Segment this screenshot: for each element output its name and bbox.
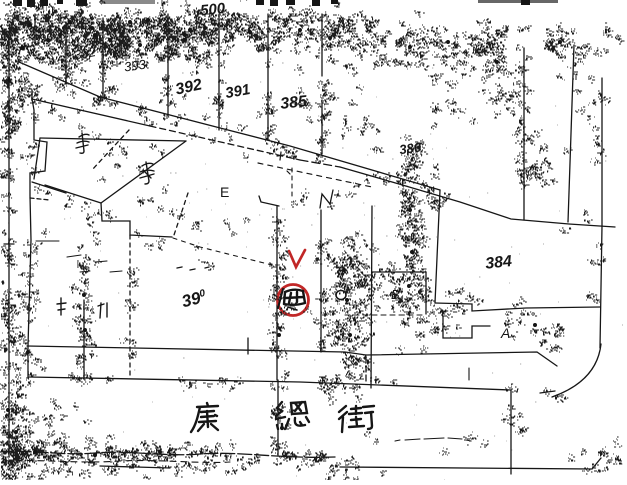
svg-text:384: 384 xyxy=(484,253,512,273)
svg-text:E: E xyxy=(220,184,229,200)
